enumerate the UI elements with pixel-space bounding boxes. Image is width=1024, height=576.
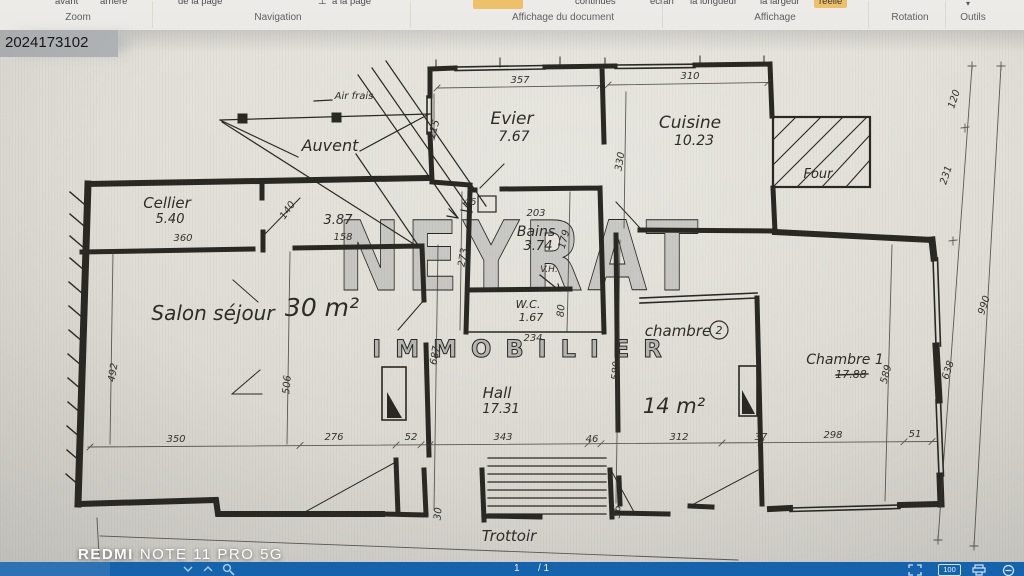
page-current[interactable]: 1 [514,563,520,574]
room-label: 14 m² [643,394,706,418]
fireplace-fill [387,392,402,418]
dimension-label: 231 [938,164,954,186]
ribbon-group-label: Rotation [891,12,928,23]
dimension-label: 990 [976,294,992,316]
room-label: Salon séjour [151,301,276,325]
zoom-out-icon[interactable] [1002,564,1016,576]
dimension-label: 46 [464,197,477,208]
ribbon-separator [945,1,946,28]
room-label: 30 m² [285,293,359,322]
watermark-brand: NEYRAT [337,201,703,314]
dimension-label: 37 [755,432,768,443]
stairs-treads [488,458,606,514]
dimension-label: 638 [940,359,956,381]
dimension-label: 30 [432,507,444,521]
room-label: Air frais [334,91,374,102]
dimension-label: 80 [555,304,567,318]
dimension-label: 343 [493,432,512,443]
dimension-label: 357 [510,75,530,86]
dimension-label: 312 [669,432,688,443]
ribbon-button-label[interactable]: arrière [100,0,127,7]
room-label: 3.74 [524,239,553,254]
zoom-level-box[interactable]: 100 [938,564,961,576]
room-label: Chambre 1 [806,352,883,368]
strikethrough-line [836,374,868,375]
canopy-post [238,114,247,123]
device-watermark-model: NOTE 11 PRO 5G [140,546,283,563]
room-label: 1.67 [519,311,544,324]
chevron-down-icon[interactable] [183,564,193,573]
room-label: 10.23 [674,133,714,149]
dimension-label: 215 [427,119,443,140]
dimension-label: 350 [166,434,185,445]
ribbon-button-label[interactable]: de la page [178,0,222,7]
ribbon-button-label[interactable]: avant [55,0,78,7]
chevron-up-icon[interactable] [203,564,213,573]
ribbon-separator [410,1,411,28]
dimension-label: 492 [106,362,120,383]
dimension-label: 580 [610,361,623,381]
room-label: Trottoir [482,527,537,545]
ribbon-group-label: Navigation [254,12,301,23]
dimension-label: 46 [586,434,599,445]
room-label: 3.87 [324,213,354,228]
dimension-label: 298 [823,430,842,441]
ribbon-group-label: Zoom [65,12,91,23]
ribbon-button-label[interactable]: la longueur [690,0,737,7]
dimension-label: 234 [523,333,542,344]
dimension-label: 310 [680,71,699,82]
dimension-label: 330 [613,151,627,172]
room-label: Four [803,167,834,182]
flue-fill [742,390,755,414]
ribbon-group-label: Affichage [754,12,796,23]
ribbon-separator [152,1,153,28]
room-label: 2 [716,324,723,337]
dimension-label: 276 [324,432,343,443]
dimension-label: 158 [333,232,352,243]
ribbon-button-label[interactable]: continues [575,0,616,7]
room-label: chambre [645,322,711,340]
dimension-label: 36 [611,505,623,519]
app-window: ⊥ ▾ avantarrièrede la pageà la pageconti… [0,0,1024,576]
device-watermark: REDMINOTE 11 PRO 5G [78,546,283,563]
fullscreen-icon[interactable] [908,564,922,576]
canopy-post [332,113,341,122]
room-label: Bains [517,224,555,240]
room-label: V.H. [540,265,558,275]
ribbon-button-label[interactable]: à la page [332,0,371,7]
dimension-label: 506 [281,375,294,395]
room-label: Cuisine [659,113,721,133]
room-label: 7.67 [498,129,529,145]
dimension-label: 203 [526,208,545,219]
dimension-label: 52 [405,432,418,443]
printer-icon[interactable] [972,564,986,576]
page-total: / 1 [538,563,549,574]
toolbar-ribbon: ⊥ ▾ avantarrièrede la pageà la pageconti… [0,0,1024,31]
dimension-label: 51 [909,429,922,440]
ribbon-button-label[interactable]: la largeur [760,0,800,7]
fit-page-icon[interactable]: ⊥ [318,0,327,7]
room-label: Cellier [143,194,191,212]
dimension-label: 120 [946,88,962,110]
dimension-label: 360 [173,233,192,244]
ribbon-button-label[interactable]: écran [650,0,674,7]
highlighted-ribbon-button[interactable] [473,0,523,9]
statusbar-left-segment [0,562,110,576]
room-label: Hall [483,384,513,402]
ribbon-button-label[interactable]: réelle [814,0,847,8]
device-watermark-brand: REDMI [78,546,134,563]
room-label: 17.31 [482,402,519,417]
room-label: W.C. [516,298,541,311]
chevron-down-icon[interactable]: ▾ [966,0,970,8]
ribbon-group-label: Affichage du document [512,12,614,23]
status-bar: 1 / 1 100 [0,562,1024,576]
search-icon[interactable] [222,563,235,576]
ribbon-separator [868,1,869,28]
room-label: 5.40 [156,212,185,227]
room-label: Auvent [301,136,360,155]
room-label: Evier [491,109,535,129]
document-photo[interactable]: 2024173102 NEYRAT IMMOBILIER [0,30,1024,562]
ribbon-group-label: Outils [960,12,986,23]
floor-plan-drawing: NEYRAT IMMOBILIER [0,30,1024,562]
